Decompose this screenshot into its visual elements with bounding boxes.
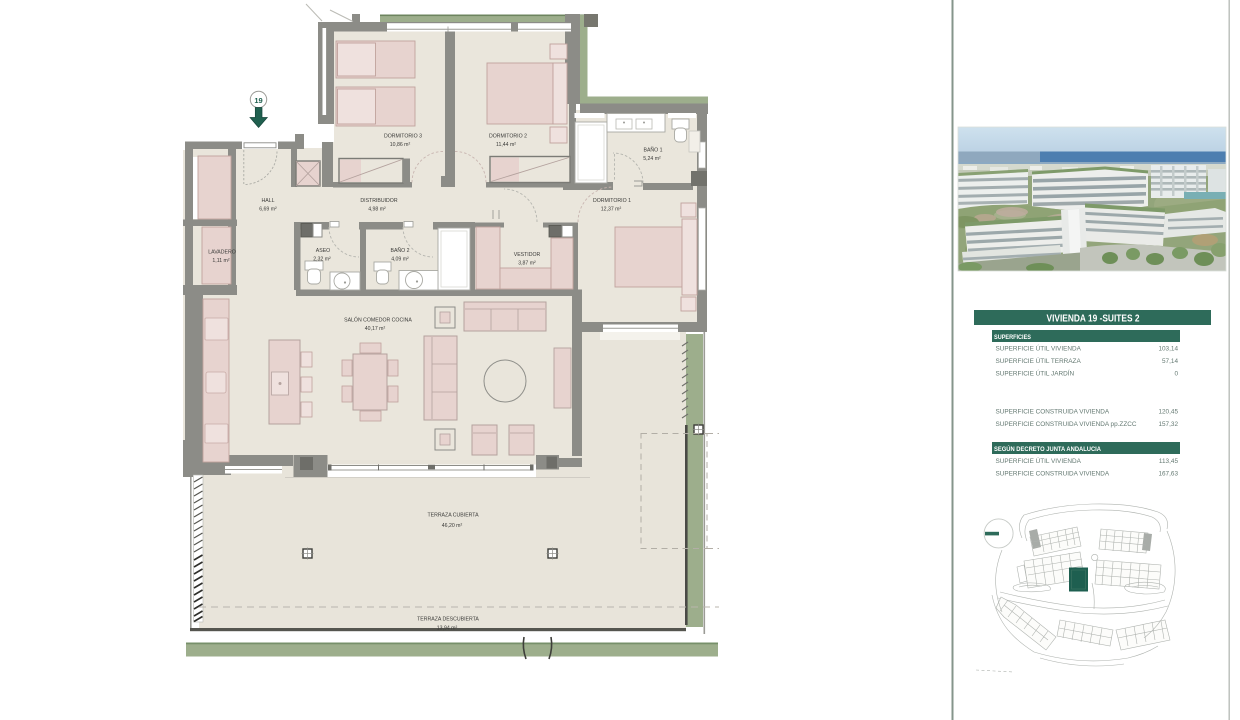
svg-text:SUPERFICIE ÚTIL VIVIENDA: SUPERFICIE ÚTIL VIVIENDA: [996, 456, 1082, 465]
svg-text:103,14: 103,14: [1158, 346, 1178, 353]
svg-text:ASEO: ASEO: [316, 248, 330, 254]
svg-text:3,87 m²: 3,87 m²: [518, 261, 536, 267]
svg-text:SUPERFICIE ÚTIL TERRAZA: SUPERFICIE ÚTIL TERRAZA: [996, 356, 1082, 365]
svg-text:2,32 m²: 2,32 m²: [313, 257, 331, 263]
svg-text:DORMITORIO 2: DORMITORIO 2: [489, 134, 527, 140]
svg-text:46,20 m²: 46,20 m²: [442, 523, 463, 529]
svg-text:12,37 m²: 12,37 m²: [601, 207, 622, 213]
svg-text:BAÑO 1: BAÑO 1: [643, 147, 662, 154]
svg-text:40,17 m²: 40,17 m²: [365, 326, 386, 332]
svg-text:DORMITORIO 3: DORMITORIO 3: [384, 134, 422, 140]
svg-text:VIVIENDA 19 -SUITES 2: VIVIENDA 19 -SUITES 2: [1047, 313, 1140, 324]
svg-text:167,63: 167,63: [1158, 471, 1178, 478]
svg-text:SUPERFICIE ÚTIL VIVIENDA: SUPERFICIE ÚTIL VIVIENDA: [996, 344, 1082, 353]
svg-text:SUPERFICIE CONSTRUIDA VIVIENDA: SUPERFICIE CONSTRUIDA VIVIENDA: [996, 471, 1110, 478]
svg-text:SALÓN COMEDOR COCINA: SALÓN COMEDOR COCINA: [344, 317, 412, 324]
svg-text:TERRAZA CUBIERTA: TERRAZA CUBIERTA: [427, 513, 479, 519]
svg-text:6,69 m²: 6,69 m²: [259, 207, 277, 213]
svg-text:DORMITORIO 1: DORMITORIO 1: [593, 198, 631, 204]
svg-text:5,24 m²: 5,24 m²: [643, 156, 661, 162]
svg-text:4,98 m²: 4,98 m²: [368, 207, 386, 213]
svg-text:57,14: 57,14: [1162, 358, 1178, 365]
svg-text:LAVADERO: LAVADERO: [208, 250, 235, 256]
svg-text:SUPERFICIE CONSTRUIDA VIVIENDA: SUPERFICIE CONSTRUIDA VIVIENDA pp.ZZCC: [996, 421, 1137, 428]
svg-text:4,09 m²: 4,09 m²: [391, 257, 409, 263]
svg-text:0: 0: [1174, 371, 1178, 378]
svg-text:19: 19: [254, 96, 262, 105]
svg-text:113,45: 113,45: [1159, 458, 1179, 465]
svg-text:HALL: HALL: [262, 198, 275, 204]
svg-text:120,45: 120,45: [1158, 409, 1178, 416]
svg-text:TERRAZA DESCUBIERTA: TERRAZA DESCUBIERTA: [417, 617, 479, 623]
svg-text:1,11 m²: 1,11 m²: [212, 258, 229, 264]
svg-text:SEGÚN DECRETO JUNTA ANDALUCIA: SEGÚN DECRETO JUNTA ANDALUCIA: [994, 444, 1101, 453]
svg-text:VESTIDOR: VESTIDOR: [514, 252, 541, 258]
svg-text:DISTRIBUIDOR: DISTRIBUIDOR: [360, 198, 397, 204]
svg-text:SUPERFICIE CONSTRUIDA VIVIENDA: SUPERFICIE CONSTRUIDA VIVIENDA: [996, 409, 1110, 416]
svg-text:BAÑO 2: BAÑO 2: [390, 247, 409, 254]
svg-text:SUPERFICIE ÚTIL JARDÍN: SUPERFICIE ÚTIL JARDÍN: [996, 369, 1075, 378]
svg-text:13,94 m²: 13,94 m²: [437, 626, 458, 632]
svg-text:10,86 m²: 10,86 m²: [390, 142, 411, 148]
svg-text:157,32: 157,32: [1158, 421, 1178, 428]
svg-text:11,44 m²: 11,44 m²: [496, 142, 516, 148]
svg-text:SUPERFICIES: SUPERFICIES: [994, 334, 1031, 341]
